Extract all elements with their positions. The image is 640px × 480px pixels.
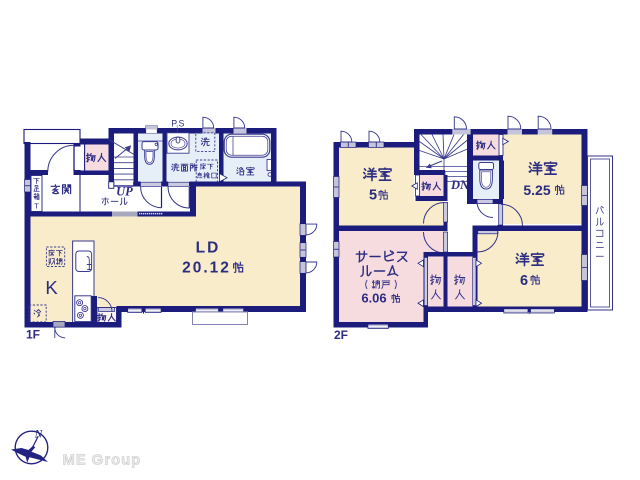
svg-text:P.S: P.S <box>171 118 184 128</box>
svg-text:UP: UP <box>116 184 133 198</box>
svg-text:1F: 1F <box>26 328 40 342</box>
svg-text:N: N <box>34 429 44 441</box>
svg-text:K: K <box>45 277 58 298</box>
svg-text:T: T <box>34 202 39 211</box>
svg-text:2F: 2F <box>334 328 348 342</box>
svg-text:6.06: 6.06 <box>361 291 386 306</box>
svg-text:20.12: 20.12 <box>182 260 231 277</box>
svg-text:ME Group: ME Group <box>63 453 142 469</box>
svg-text:DN: DN <box>450 178 470 192</box>
svg-text:5: 5 <box>369 188 377 204</box>
svg-text:LD: LD <box>196 240 221 257</box>
svg-text:5.25: 5.25 <box>523 182 550 198</box>
svg-text:6: 6 <box>520 273 528 289</box>
